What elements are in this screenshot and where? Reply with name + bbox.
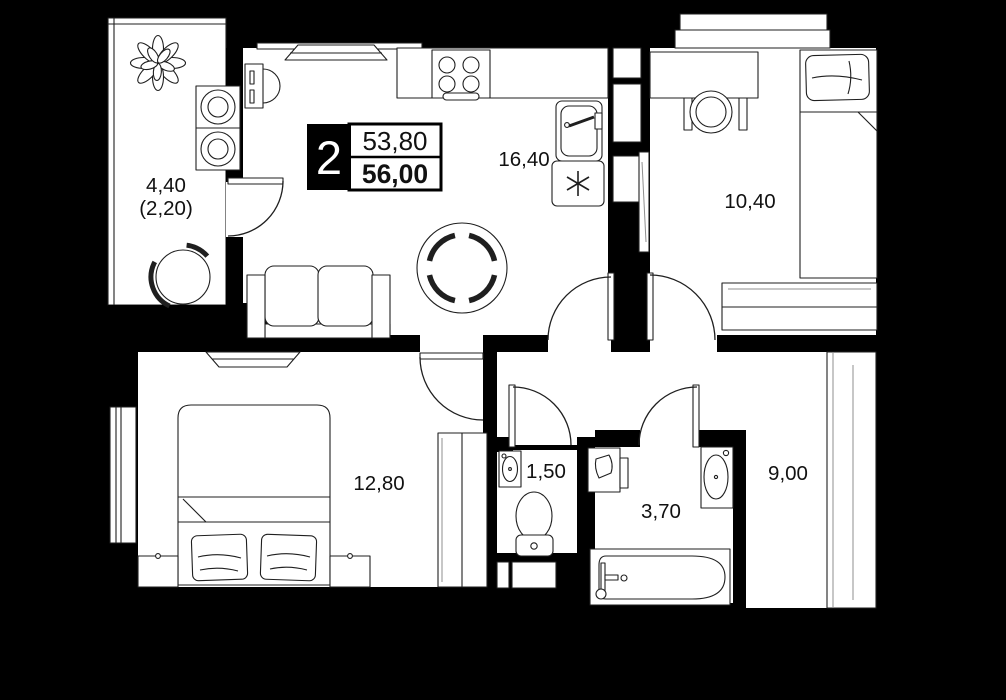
doorway-bedroom-right: [650, 335, 717, 352]
room-label-wc: 1,50: [526, 460, 566, 483]
toilet: [516, 492, 553, 556]
pillow: [805, 54, 869, 101]
tub-faucet-spout: [605, 575, 618, 580]
hall-wardrobe: [827, 352, 876, 608]
knob: [348, 554, 353, 559]
room-label-balcony: 4,40: [146, 174, 186, 197]
room-label-balcony-coefficient: (2,20): [139, 197, 193, 220]
room-label-hallway: 9,00: [768, 462, 808, 485]
sofa-armrest: [372, 275, 390, 338]
room-label-bathroom: 3,70: [641, 500, 681, 523]
balcony-table-top: [156, 250, 210, 304]
double-bed: [178, 405, 330, 585]
dining-table-top: [417, 223, 507, 313]
window-bedroom-right-outer: [680, 14, 827, 30]
dining-table: [417, 223, 507, 313]
oven-handle: [443, 93, 479, 100]
duct-box: [497, 562, 509, 588]
door-leaf: [647, 273, 653, 340]
room-label-bedroom-left: 12,80: [353, 472, 404, 495]
sofa: [247, 266, 390, 338]
door-leaf: [509, 385, 515, 447]
kitchen-sink: [556, 101, 602, 161]
pillow: [260, 534, 317, 581]
shower-head: [596, 589, 606, 599]
nightstand: [138, 554, 178, 587]
vent-shaft-opening: [613, 156, 641, 202]
knob: [156, 554, 161, 559]
single-bed: [800, 50, 877, 278]
chair-armrest: [739, 98, 747, 130]
living-area-value: 53,80: [362, 126, 427, 156]
doorway-balcony: [226, 182, 243, 237]
bathroom-sink: [701, 447, 733, 508]
sofa-armrest: [247, 275, 265, 338]
wall-central-band: [108, 335, 898, 352]
plant-icon: [131, 36, 186, 91]
room-label-kitchen-living: 16,40: [498, 148, 549, 171]
wall-bathroom-right: [733, 437, 746, 610]
bathtub: [590, 549, 730, 605]
room-label-bedroom-right: 10,40: [724, 190, 775, 213]
washer-dryer-stack: [196, 86, 240, 170]
dresser: [722, 283, 877, 330]
floor-plan-canvas: 2 53,80 56,00 4,40 (2,20) 16,40 10,40 12…: [0, 0, 1006, 700]
door-leaf: [420, 353, 483, 359]
tub-faucet: [601, 563, 605, 591]
kitchen-lower-cabinet: [552, 161, 604, 206]
wardrobe-bedroom: [438, 433, 487, 587]
doorway-living: [548, 335, 611, 352]
nightstand: [330, 554, 370, 587]
washer-side-panel: [620, 458, 628, 488]
window-bedroom-right-inner: [675, 30, 830, 48]
door-leaf: [693, 385, 699, 447]
rooms-count: 2: [316, 131, 342, 184]
door-leaf: [228, 178, 283, 184]
apartment-type-badge: 2 53,80 56,00: [307, 124, 441, 190]
sofa-cushion: [318, 266, 373, 326]
vent-shaft-opening: [613, 84, 641, 142]
sofa-cushion: [265, 266, 319, 326]
toilet-tank: [516, 535, 553, 556]
wall-bathroom-top-left: [595, 430, 640, 447]
mirror-panel: [639, 152, 649, 252]
doorway-bedroom-left: [420, 335, 483, 352]
duct-box: [512, 562, 556, 588]
hallway-corridor-floor: [497, 352, 876, 445]
faucet-base: [595, 113, 602, 129]
floor-plan-page: 2 53,80 56,00 4,40 (2,20) 16,40 10,40 12…: [0, 0, 1006, 700]
stove-cooktop: [432, 50, 490, 100]
vent-shaft-opening: [613, 48, 641, 78]
toilet-bowl: [516, 492, 552, 540]
pillow: [191, 534, 248, 581]
window-bedroom-left: [110, 407, 136, 543]
desk: [650, 52, 758, 98]
door-leaf: [608, 273, 614, 340]
corner-sink: [499, 451, 521, 487]
kitchen-counter: [397, 48, 608, 98]
total-area-value: 56,00: [362, 159, 428, 189]
